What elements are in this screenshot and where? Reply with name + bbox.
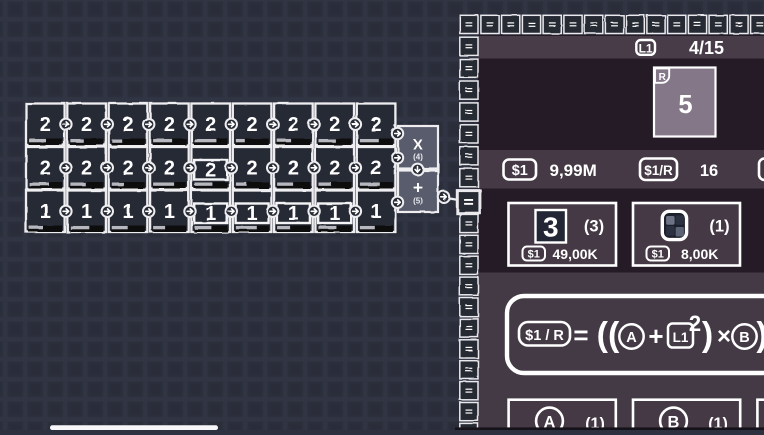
- svg-text:+: +: [413, 178, 423, 198]
- svg-text:(4): (4): [413, 153, 423, 162]
- svg-text:1: 1: [371, 201, 382, 223]
- svg-text:4/15: 4/15: [689, 38, 724, 58]
- svg-text:1: 1: [122, 201, 133, 223]
- svg-text:2: 2: [329, 158, 340, 180]
- svg-text:$1: $1: [652, 249, 664, 261]
- svg-text:$1 / R: $1 / R: [525, 328, 564, 344]
- svg-text:+: +: [648, 321, 663, 351]
- svg-text:$1: $1: [512, 163, 528, 179]
- svg-text:×: ×: [717, 323, 731, 350]
- svg-text:2: 2: [164, 158, 175, 180]
- svg-text:2: 2: [122, 114, 133, 136]
- svg-text:2: 2: [205, 159, 216, 181]
- svg-text:49,00K: 49,00K: [553, 246, 598, 262]
- svg-text:2: 2: [40, 114, 51, 136]
- svg-text:1: 1: [40, 201, 51, 223]
- svg-text:=: =: [573, 320, 588, 350]
- svg-text:(5): (5): [413, 197, 423, 206]
- svg-text:2: 2: [288, 158, 299, 180]
- svg-text:2: 2: [371, 114, 382, 136]
- svg-text:3: 3: [543, 212, 559, 243]
- svg-text:2: 2: [329, 114, 340, 136]
- svg-text:R: R: [659, 72, 667, 83]
- svg-text:): ): [756, 316, 764, 354]
- svg-text:(1): (1): [709, 218, 729, 236]
- svg-text:1: 1: [81, 201, 92, 223]
- svg-text:(3): (3): [584, 218, 604, 236]
- svg-text:2: 2: [205, 114, 216, 136]
- svg-text:L1: L1: [673, 330, 689, 345]
- svg-text:2: 2: [81, 114, 92, 136]
- svg-text:1: 1: [288, 203, 299, 225]
- svg-text:9,99M: 9,99M: [550, 161, 597, 180]
- svg-text:2: 2: [122, 158, 133, 180]
- svg-text:((: ((: [597, 316, 620, 354]
- svg-text:$1: $1: [528, 249, 540, 261]
- svg-text:1: 1: [247, 203, 258, 225]
- svg-text:2: 2: [371, 158, 382, 180]
- svg-text:8,00K: 8,00K: [681, 246, 718, 262]
- svg-text:5: 5: [678, 91, 692, 119]
- svg-text:2: 2: [247, 114, 258, 136]
- svg-text:2: 2: [689, 311, 701, 336]
- svg-text:2: 2: [81, 158, 92, 180]
- svg-text:$1/R: $1/R: [644, 163, 673, 178]
- svg-text:1: 1: [329, 203, 340, 225]
- svg-text:16: 16: [700, 162, 718, 180]
- svg-text:2: 2: [164, 114, 175, 136]
- svg-text:B: B: [739, 330, 749, 346]
- svg-text:): ): [702, 316, 713, 354]
- svg-text:2: 2: [288, 114, 299, 136]
- svg-text:A: A: [626, 330, 637, 346]
- svg-text:2: 2: [247, 158, 258, 180]
- svg-text:1: 1: [205, 203, 216, 225]
- svg-text:X: X: [413, 138, 423, 154]
- svg-text:2: 2: [40, 158, 51, 180]
- svg-text:L1: L1: [639, 41, 653, 55]
- svg-text:1: 1: [164, 201, 175, 223]
